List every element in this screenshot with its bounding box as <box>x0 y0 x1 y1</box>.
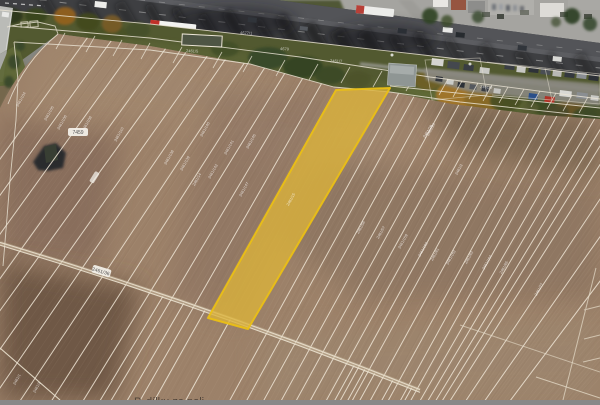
svg-text:2461/9: 2461/9 <box>480 84 493 90</box>
svg-text:4679: 4679 <box>280 46 290 51</box>
svg-text:2461/7: 2461/7 <box>330 58 343 64</box>
svg-text:P. dílku za poli: P. dílku za poli <box>134 396 204 400</box>
svg-text:7459: 7459 <box>72 130 83 136</box>
svg-text:4677/1: 4677/1 <box>240 30 253 36</box>
svg-text:2461/5: 2461/5 <box>186 48 199 54</box>
